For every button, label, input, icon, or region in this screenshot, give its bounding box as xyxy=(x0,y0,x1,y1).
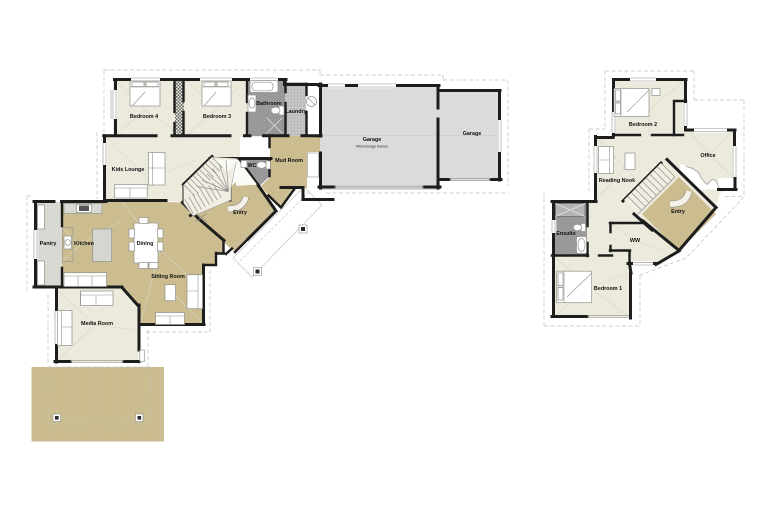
svg-text:Bedroom 1: Bedroom 1 xyxy=(594,286,622,292)
svg-text:Kids Lounge: Kids Lounge xyxy=(112,167,145,173)
svg-text:Bathroom: Bathroom xyxy=(256,101,282,107)
svg-text:Garage: Garage xyxy=(463,131,482,137)
svg-text:Reading Nook: Reading Nook xyxy=(599,178,635,184)
svg-text:Garage: Garage xyxy=(363,137,382,143)
svg-text:Office: Office xyxy=(700,153,715,159)
svg-text:Bedroom 2: Bedroom 2 xyxy=(629,122,657,128)
svg-text:Sitting Room: Sitting Room xyxy=(151,274,185,280)
svg-text:Entry: Entry xyxy=(671,209,685,215)
svg-text:Bedroom 4: Bedroom 4 xyxy=(130,114,158,120)
svg-text:Dining: Dining xyxy=(137,241,154,247)
svg-text:Entry: Entry xyxy=(233,210,247,216)
svg-text:Laundry: Laundry xyxy=(285,109,306,115)
svg-text:Media Room: Media Room xyxy=(81,321,113,327)
svg-text:Kitchen: Kitchen xyxy=(74,241,94,247)
svg-text:Attic/storage frames: Attic/storage frames xyxy=(356,145,388,149)
svg-text:Mud Room: Mud Room xyxy=(275,158,303,164)
svg-text:Bedroom 3: Bedroom 3 xyxy=(203,114,231,120)
svg-text:WC: WC xyxy=(248,163,257,169)
svg-text:Ensuite: Ensuite xyxy=(556,231,575,237)
svg-text:Pantry: Pantry xyxy=(40,241,57,247)
svg-text:WW: WW xyxy=(630,238,641,244)
